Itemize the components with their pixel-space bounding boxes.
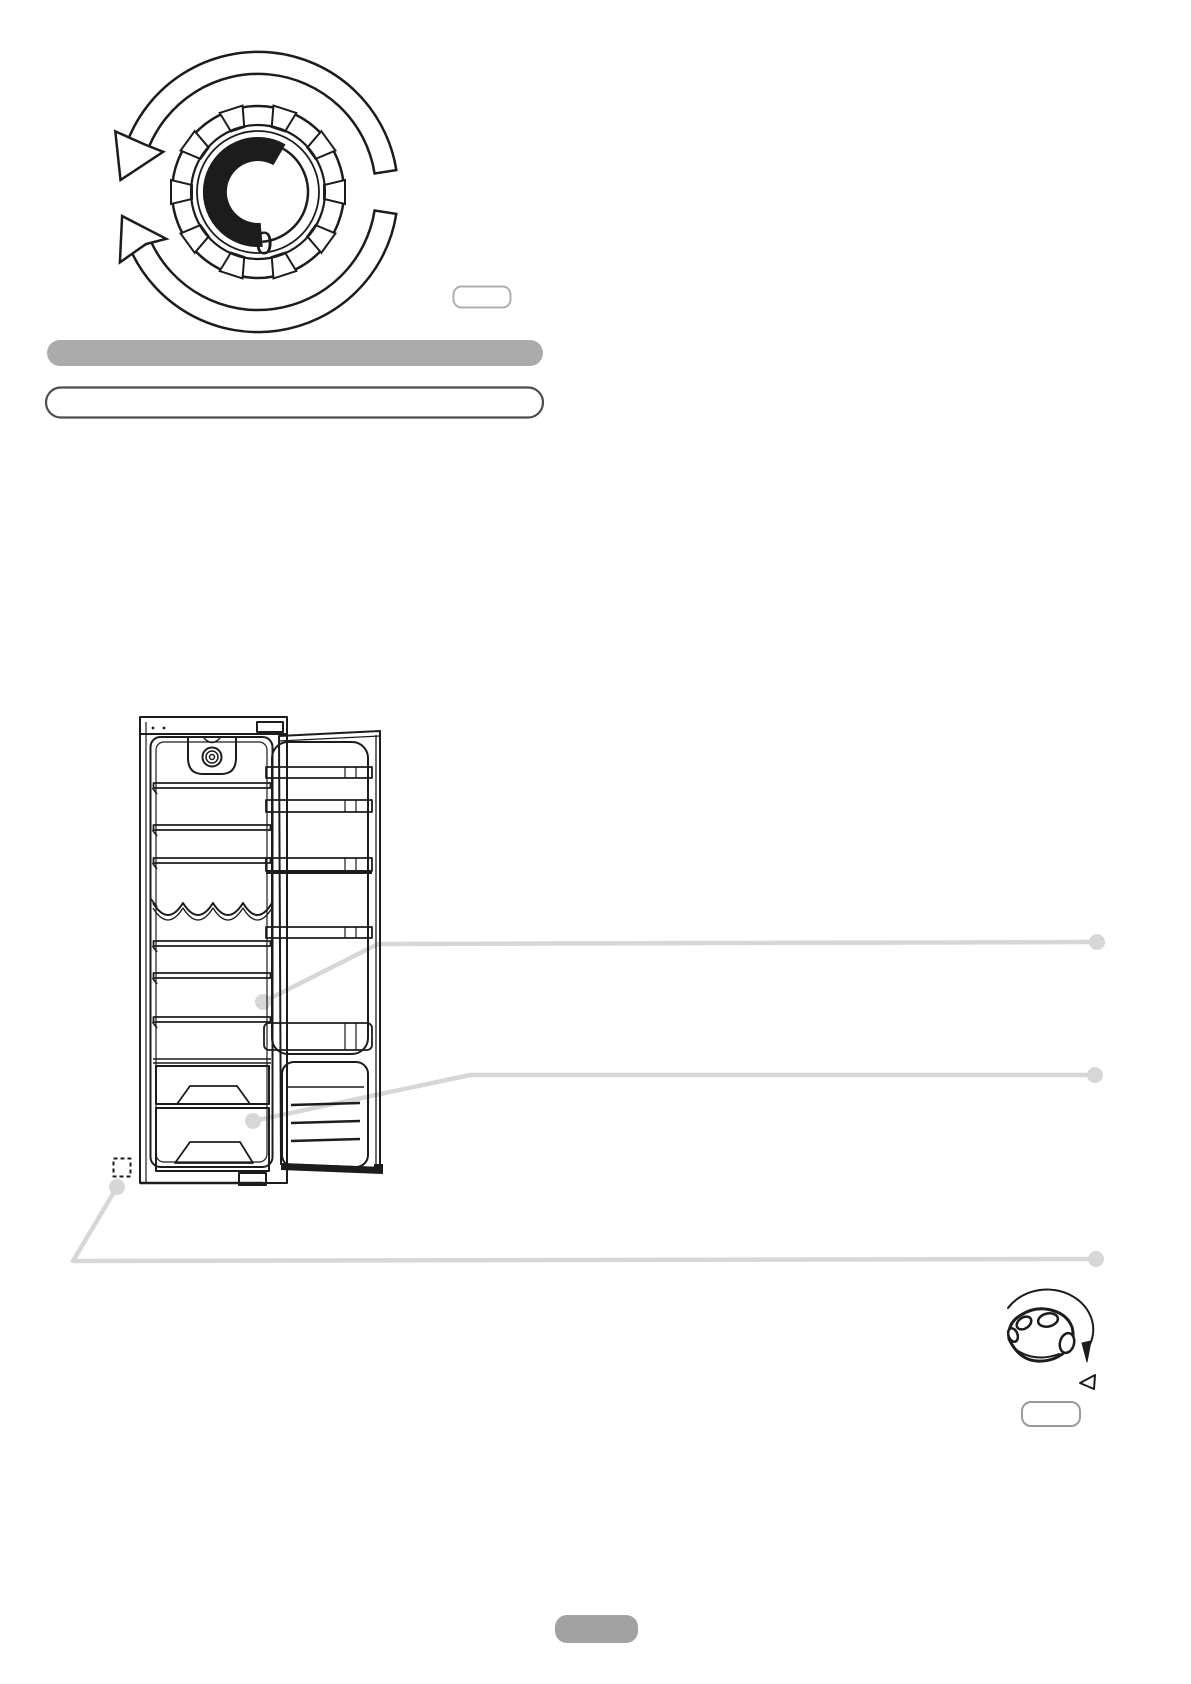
dial-indicator-arc (215, 149, 280, 235)
rotate-both-ways-arrows-icon (115, 52, 396, 332)
callout-dot (245, 1113, 261, 1129)
direction-triangle-icon (1080, 1375, 1095, 1389)
fridge-liner-inner (156, 742, 267, 1162)
top-pill-button (454, 287, 511, 308)
manual-page: 0 (0, 0, 1191, 1684)
rating-plate-dashed-box (114, 1159, 131, 1177)
redacted-subheading-pill (46, 388, 543, 418)
callout-dot (1087, 1067, 1103, 1083)
door-lower-pocket (282, 1062, 368, 1167)
callout-dot (1088, 1251, 1104, 1267)
shelf (154, 1017, 271, 1022)
callout-dot (1089, 934, 1105, 950)
door-hinge-bracket (257, 722, 283, 732)
door-bottom-gasket (281, 1163, 383, 1174)
wine-rack-shelf (151, 899, 272, 920)
shelf (154, 825, 271, 830)
shelf (154, 783, 271, 788)
lamp-housing (188, 738, 236, 774)
redacted-heading-bar (47, 340, 543, 366)
crisper-cover-shelf (153, 1059, 271, 1063)
thermostat-dial-figure: 0 (115, 52, 396, 332)
shelf (154, 858, 271, 863)
shelf (154, 973, 271, 978)
fridge-liner (151, 737, 273, 1167)
callout-line-shelf (263, 942, 1097, 1002)
fridge-door (272, 731, 383, 1174)
dial-zero-label: 0 (254, 227, 273, 262)
callout-line-rating-plate (73, 1187, 1096, 1261)
callout-dot (109, 1179, 125, 1195)
knob-rotate-arrow-head (1082, 1341, 1091, 1362)
callout-lines (73, 942, 1097, 1261)
callout-dots (109, 934, 1105, 1267)
thermostat-dial: 0 (171, 106, 345, 279)
shelf (154, 941, 271, 946)
knob-pill-button (1022, 1402, 1080, 1426)
rotate-knob-figure (1006, 1290, 1095, 1389)
page-number-badge (555, 1615, 638, 1643)
callout-dot (255, 994, 271, 1010)
crisper-drawer-upper (156, 1066, 269, 1104)
